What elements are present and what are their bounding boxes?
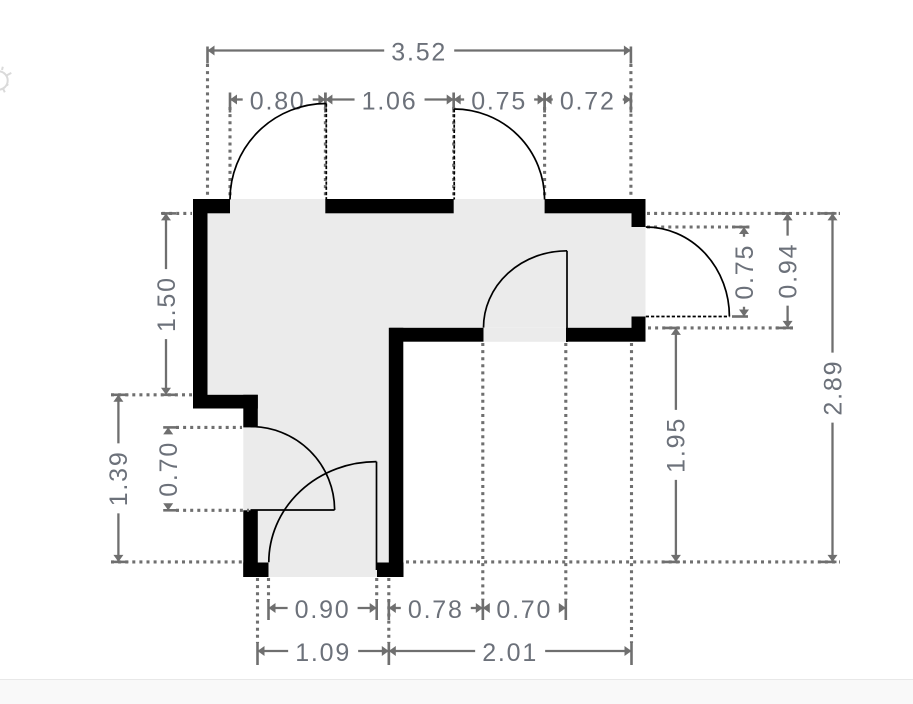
svg-text:3.52: 3.52 [391, 38, 447, 66]
svg-text:0.75: 0.75 [471, 87, 527, 115]
svg-text:0.94: 0.94 [774, 243, 802, 299]
svg-text:1.09: 1.09 [295, 639, 351, 667]
svg-text:0.90: 0.90 [295, 596, 351, 624]
svg-text:0.78: 0.78 [408, 596, 464, 624]
svg-text:2.89: 2.89 [819, 360, 847, 416]
svg-text:1.06: 1.06 [362, 87, 418, 115]
svg-text:1.39: 1.39 [105, 450, 133, 506]
svg-text:0.80: 0.80 [250, 87, 306, 115]
svg-text:0.72: 0.72 [560, 87, 616, 115]
svg-text:0.70: 0.70 [496, 596, 552, 624]
svg-text:1.50: 1.50 [153, 276, 181, 332]
svg-text:0.70: 0.70 [155, 441, 183, 497]
svg-text:1.95: 1.95 [663, 417, 691, 473]
svg-text:2.01: 2.01 [482, 639, 538, 667]
svg-text:0.75: 0.75 [731, 244, 759, 300]
